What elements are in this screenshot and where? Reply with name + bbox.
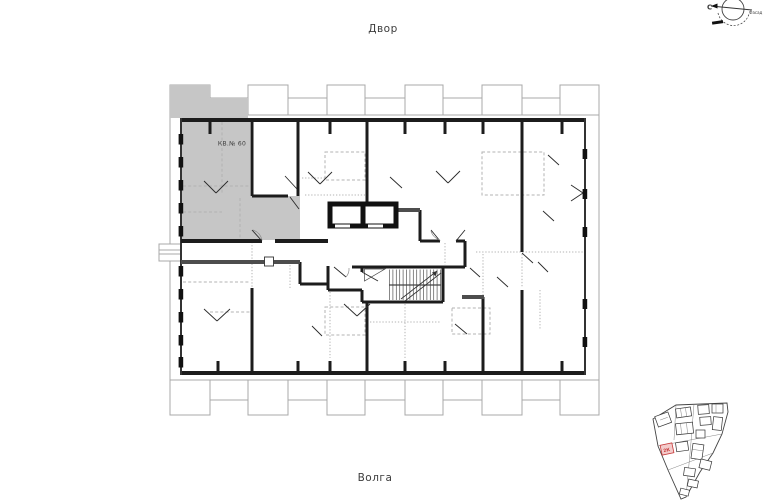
compass-rose: С Фасад bbox=[707, 0, 763, 26]
entrance-porch bbox=[159, 244, 181, 261]
courtyard-label: Двор bbox=[368, 23, 397, 35]
compass-north-label: С bbox=[707, 4, 712, 12]
compass-note-label: Фасад bbox=[749, 10, 763, 15]
drawing-canvas: Двор Волга bbox=[0, 0, 770, 500]
floor-plan-drawing: Двор Волга bbox=[0, 0, 770, 500]
apartment-number-label: КВ.№ 60 bbox=[218, 141, 246, 148]
river-label: Волга bbox=[358, 472, 393, 484]
corridor-niche bbox=[265, 257, 274, 266]
site-key-plan: 2К bbox=[653, 403, 728, 499]
elevator-shafts bbox=[330, 202, 396, 231]
